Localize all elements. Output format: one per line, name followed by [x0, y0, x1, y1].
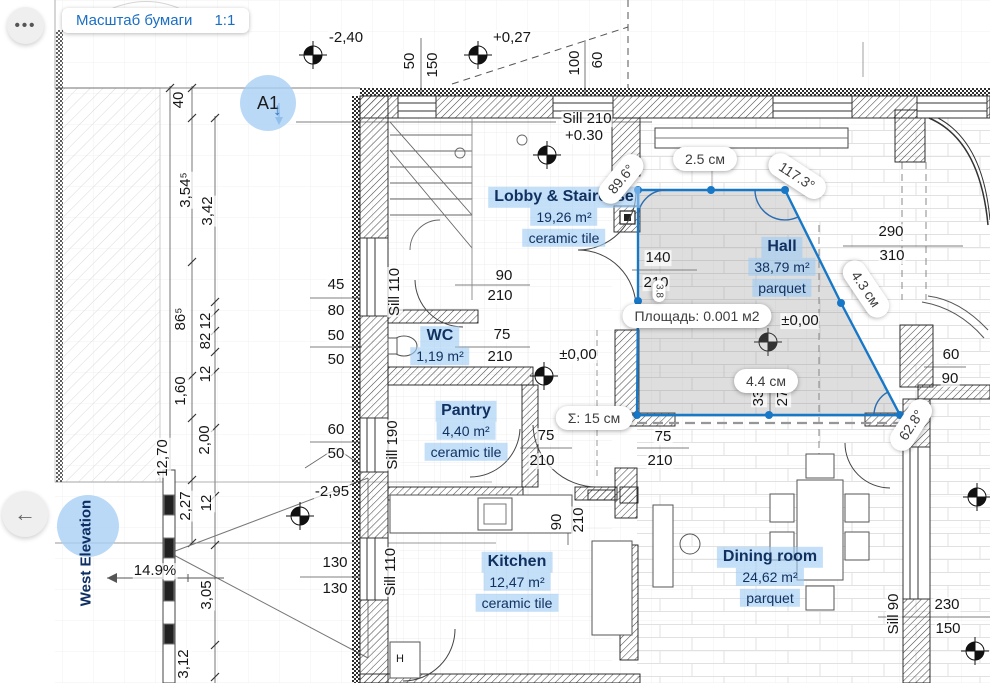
paper-scale-label: Масштаб бумаги: [76, 12, 192, 29]
a1-arrow-icon: ↓: [273, 100, 282, 120]
chair: [845, 532, 869, 560]
appliance: [390, 642, 420, 678]
dining-table: [797, 480, 843, 580]
sideboard: [653, 505, 673, 587]
ellipsis-icon: •••: [15, 17, 37, 34]
west-elevation-label: West Elevation: [78, 500, 95, 606]
back-arrow-icon: ←: [14, 501, 36, 527]
chair: [770, 494, 794, 522]
chair: [806, 454, 834, 478]
chair: [806, 586, 834, 610]
floor-plan-app: -2,4050150+0,2710060Sill 210+0.30403,54⁵…: [0, 0, 990, 683]
more-options-button[interactable]: •••: [7, 7, 44, 44]
section-marker-a1[interactable]: A1: [240, 75, 296, 131]
chair: [770, 532, 794, 560]
paper-scale-value: 1:1: [214, 12, 235, 29]
back-button[interactable]: ←: [2, 491, 48, 537]
floor-plan-canvas[interactable]: [0, 0, 990, 683]
paper-scale-pill[interactable]: Масштаб бумаги1:1: [62, 8, 249, 33]
kitchen-counter-right: [592, 541, 632, 635]
chair: [845, 494, 869, 522]
